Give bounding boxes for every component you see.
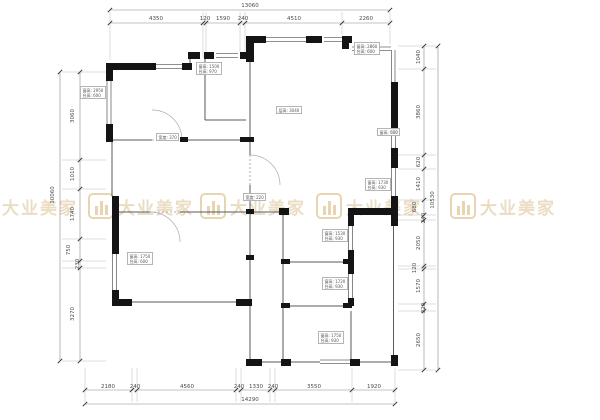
dim-label: 10530 <box>430 191 436 209</box>
wall-segment <box>306 36 322 43</box>
wall-segment <box>279 208 289 215</box>
window-annotation: 窗高: 1500台高: 970 <box>196 62 222 75</box>
wall-segment <box>391 82 398 134</box>
wall-segment <box>281 359 291 366</box>
dim-label: 14290 <box>241 397 259 403</box>
wall-segment <box>246 359 262 366</box>
window-annotation: 窗高: 1750台高: 600 <box>127 252 153 265</box>
interior-walls <box>108 52 394 362</box>
window-annotation: 窗高: 1720台高: 930 <box>322 277 348 290</box>
wall-segment <box>246 209 254 214</box>
dim-label: 240 <box>421 212 427 223</box>
dim-label: 3550 <box>307 384 321 390</box>
wall-segment <box>343 259 352 264</box>
dim-label: 3860 <box>416 105 422 119</box>
dim-label: 1040 <box>416 50 422 64</box>
wall-segment <box>342 43 349 49</box>
dim-label: 750 <box>66 244 72 255</box>
window-annotation: 窗高: 1750台高: 930 <box>318 331 344 344</box>
dim-label: 2050 <box>416 236 422 250</box>
wall-segment <box>204 52 214 59</box>
dim-label: 1740 <box>70 207 76 221</box>
wall-segment <box>180 137 188 142</box>
window-annotation: 窗高: 2950台高: 600 <box>80 86 106 99</box>
wall-segment <box>281 259 290 264</box>
wall-segment <box>112 196 119 254</box>
wall-segment <box>106 124 113 142</box>
wall-segment <box>342 36 352 43</box>
dim-label: 3060 <box>70 109 76 123</box>
dim-label: 230 <box>75 258 81 269</box>
floor-plan-canvas: 大业美家 大业美家 大业美家 大业美家 大业美家 435012015902404… <box>0 0 600 420</box>
wall-segment <box>108 63 156 70</box>
dim-label: 620 <box>416 156 422 167</box>
dim-label: 3270 <box>70 307 76 321</box>
window-annotation: 窗高: 1530台高: 930 <box>322 229 348 242</box>
wall-segment <box>236 299 252 306</box>
wall-segment <box>391 148 398 168</box>
wall-segment <box>246 255 254 260</box>
opening-annotation: 宽度: 220 <box>243 193 266 201</box>
window-annotation: 窗高: 1730台高: 930 <box>365 178 391 191</box>
window-annotation: 窗高: 600 <box>377 128 400 136</box>
window-annotation: 窗高: 2860台高: 600 <box>354 42 380 55</box>
dim-label: 120 <box>200 16 211 22</box>
dim-label: 240 <box>130 384 141 390</box>
dim-label: 2260 <box>359 16 373 22</box>
wall-segment <box>281 303 290 308</box>
wall-segment <box>252 36 266 43</box>
wall-segment <box>343 303 352 308</box>
floor-plan-drawing: 4350120159024045102260130602180240456024… <box>0 0 600 420</box>
opening-annotation: 宽度: 370 <box>156 133 179 141</box>
dim-label: 240 <box>234 384 245 390</box>
dim-label: 4560 <box>180 384 194 390</box>
wall-segment <box>182 63 192 70</box>
dim-label: 1410 <box>416 177 422 191</box>
dim-label: 120 <box>412 262 418 273</box>
dim-label: 13060 <box>241 3 259 9</box>
wall-segment <box>240 137 248 142</box>
dim-label: 1330 <box>249 384 263 390</box>
room-height-annotation: 层高: 3040 <box>276 106 302 114</box>
wall-segment <box>391 355 398 366</box>
wall-segment <box>348 215 354 226</box>
dim-label: 4510 <box>287 16 301 22</box>
dim-label: 2180 <box>101 384 115 390</box>
wall-segment <box>112 299 132 306</box>
wall-segment <box>350 359 360 366</box>
dim-label: 680 <box>412 201 418 212</box>
door-swing-arc <box>150 212 180 242</box>
dim-label: 4350 <box>149 16 163 22</box>
dim-label: 1010 <box>70 167 76 181</box>
dim-label: 1920 <box>367 384 381 390</box>
dim-label: 240 <box>238 16 249 22</box>
dim-label: 1590 <box>216 16 230 22</box>
wall-segment <box>188 52 200 59</box>
dim-label: 240 <box>268 384 279 390</box>
dim-label: 1570 <box>416 279 422 293</box>
dim-label: 320 <box>421 302 427 313</box>
door-swing-arc <box>250 155 280 185</box>
door-openings <box>150 110 280 242</box>
dim-label: 2650 <box>416 333 422 347</box>
wall-segment <box>348 208 393 215</box>
dim-label: 10060 <box>50 186 56 204</box>
